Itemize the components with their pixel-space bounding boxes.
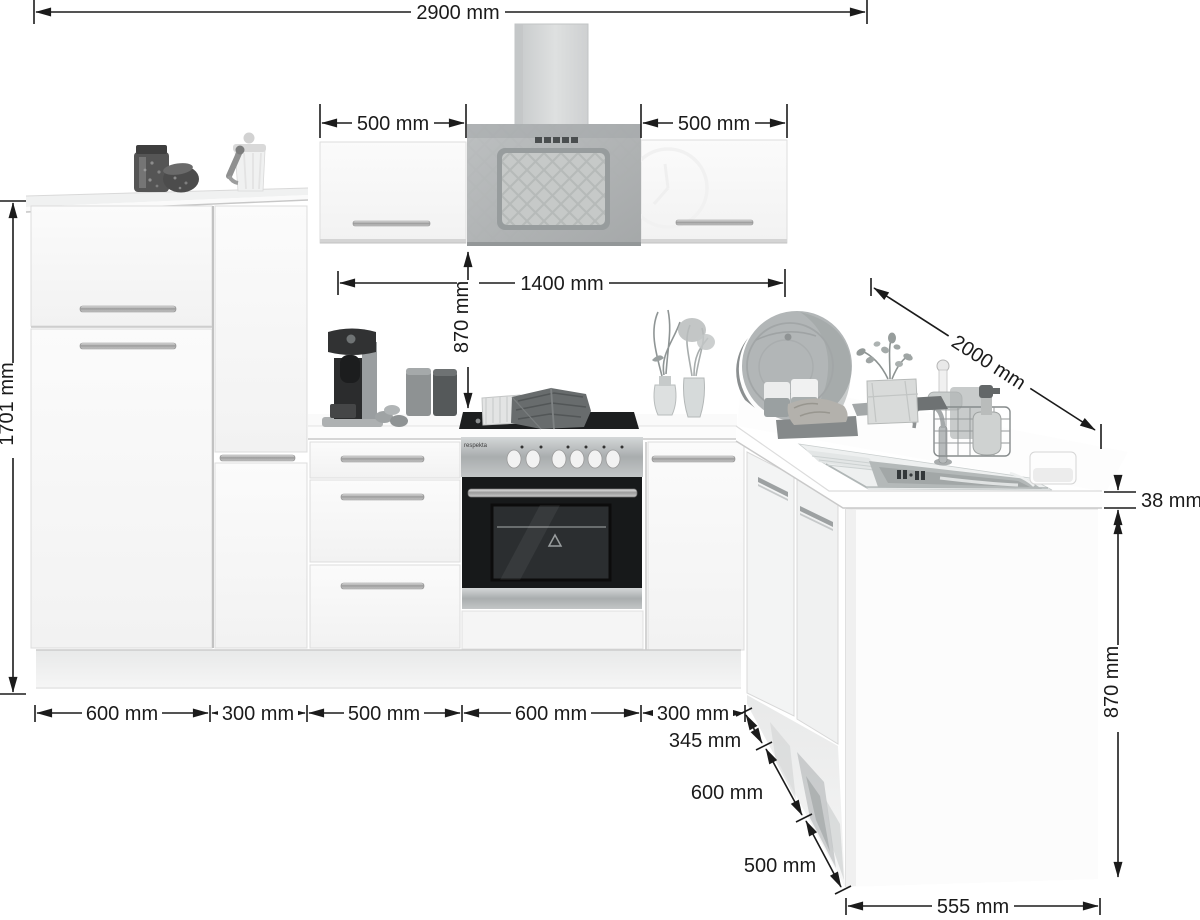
svg-text:1400 mm: 1400 mm [520, 273, 603, 295]
svg-text:300 mm: 300 mm [657, 703, 729, 725]
svg-text:600 mm: 600 mm [691, 782, 763, 804]
svg-text:555 mm: 555 mm [937, 896, 1009, 918]
svg-text:500 mm: 500 mm [357, 113, 429, 135]
svg-text:300 mm: 300 mm [222, 703, 294, 725]
svg-text:respekta: respekta [464, 443, 488, 449]
svg-text:870 mm: 870 mm [1101, 646, 1123, 718]
svg-text:345 mm: 345 mm [669, 730, 741, 752]
svg-text:500 mm: 500 mm [348, 703, 420, 725]
svg-text:500 mm: 500 mm [744, 855, 816, 877]
svg-text:38 mm: 38 mm [1141, 490, 1200, 512]
svg-text:870 mm: 870 mm [451, 281, 473, 353]
svg-text:1701 mm: 1701 mm [0, 362, 18, 445]
svg-text:2900 mm: 2900 mm [416, 2, 499, 24]
svg-text:600 mm: 600 mm [86, 703, 158, 725]
svg-text:600 mm: 600 mm [515, 703, 587, 725]
svg-text:500 mm: 500 mm [678, 113, 750, 135]
